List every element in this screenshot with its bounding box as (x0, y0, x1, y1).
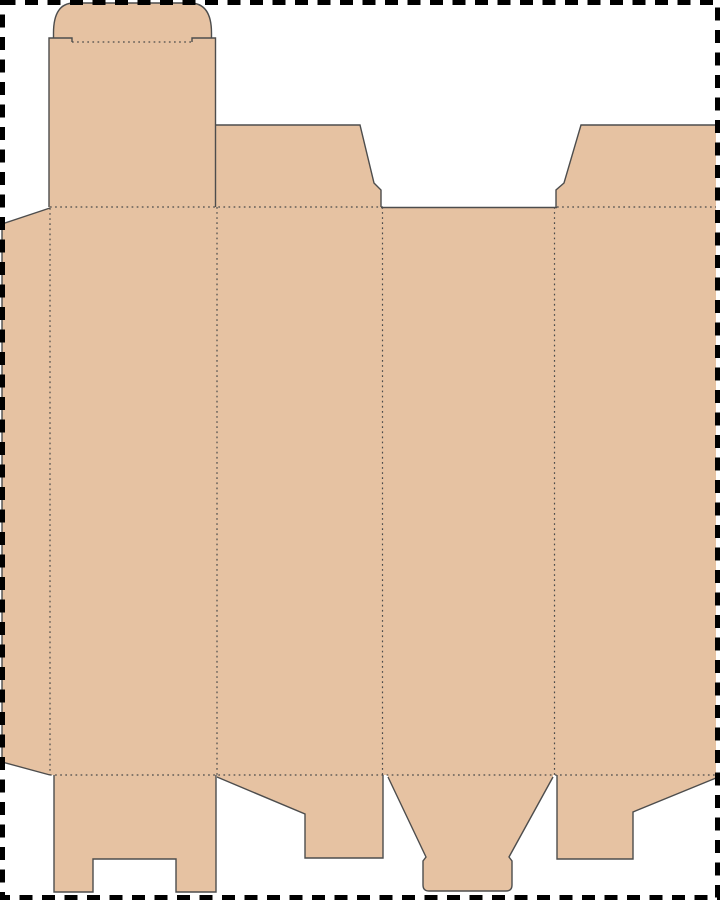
glue-flap (2, 208, 50, 775)
top-dust-flap-left (216, 125, 382, 207)
dieline-canvas (0, 0, 720, 900)
top-dust-flap-right (556, 125, 716, 207)
tuck-lid-flap (49, 3, 216, 207)
bottom-flap-panel3 (388, 775, 553, 891)
main-body-panels (49, 207, 716, 775)
bottom-flap-panel1 (54, 775, 216, 892)
dieline-svg (0, 0, 720, 900)
